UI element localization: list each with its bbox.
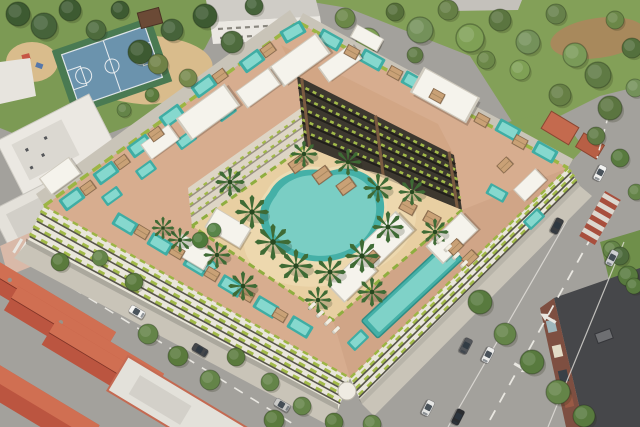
white-building-left-edge bbox=[0, 58, 36, 104]
rounded-corner-balconies bbox=[338, 382, 356, 400]
aerial-photo-canvas bbox=[0, 0, 640, 427]
aerial-render-photo bbox=[0, 0, 640, 427]
